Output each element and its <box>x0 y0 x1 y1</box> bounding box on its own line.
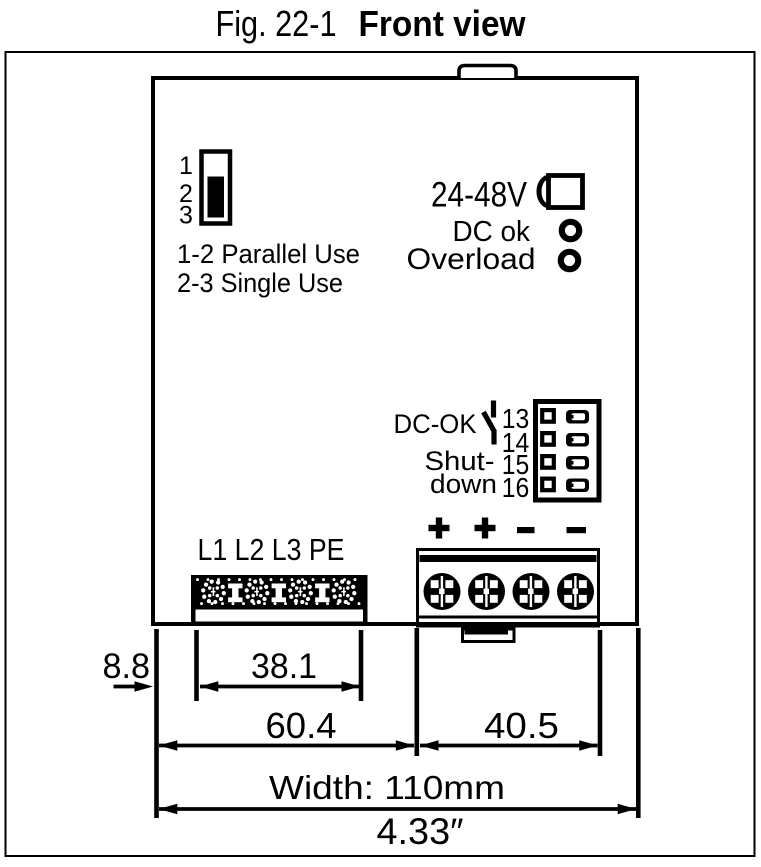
svg-text:down: down <box>430 469 497 499</box>
svg-text:24-48V: 24-48V <box>431 176 528 215</box>
svg-text:Width: 110mm: Width: 110mm <box>269 769 505 806</box>
svg-text:Front view: Front view <box>359 3 527 44</box>
svg-text:2-3 Single Use: 2-3 Single Use <box>177 268 343 298</box>
svg-text:40.5: 40.5 <box>484 705 559 746</box>
svg-text:38.1: 38.1 <box>251 647 317 686</box>
svg-text:L1 L2 L3 PE: L1 L2 L3 PE <box>198 532 345 567</box>
svg-text:Fig. 22-1: Fig. 22-1 <box>216 3 337 44</box>
svg-text:60.4: 60.4 <box>266 705 337 746</box>
svg-text:4.33″: 4.33″ <box>377 811 464 852</box>
svg-text:8.8: 8.8 <box>103 647 151 686</box>
svg-text:16: 16 <box>502 472 530 503</box>
svg-text:DC-OK: DC-OK <box>394 409 477 439</box>
svg-text:3: 3 <box>179 202 193 230</box>
svg-text:1: 1 <box>179 152 193 180</box>
svg-text:Overload: Overload <box>407 243 536 276</box>
svg-text:1-2 Parallel Use: 1-2 Parallel Use <box>177 239 360 269</box>
